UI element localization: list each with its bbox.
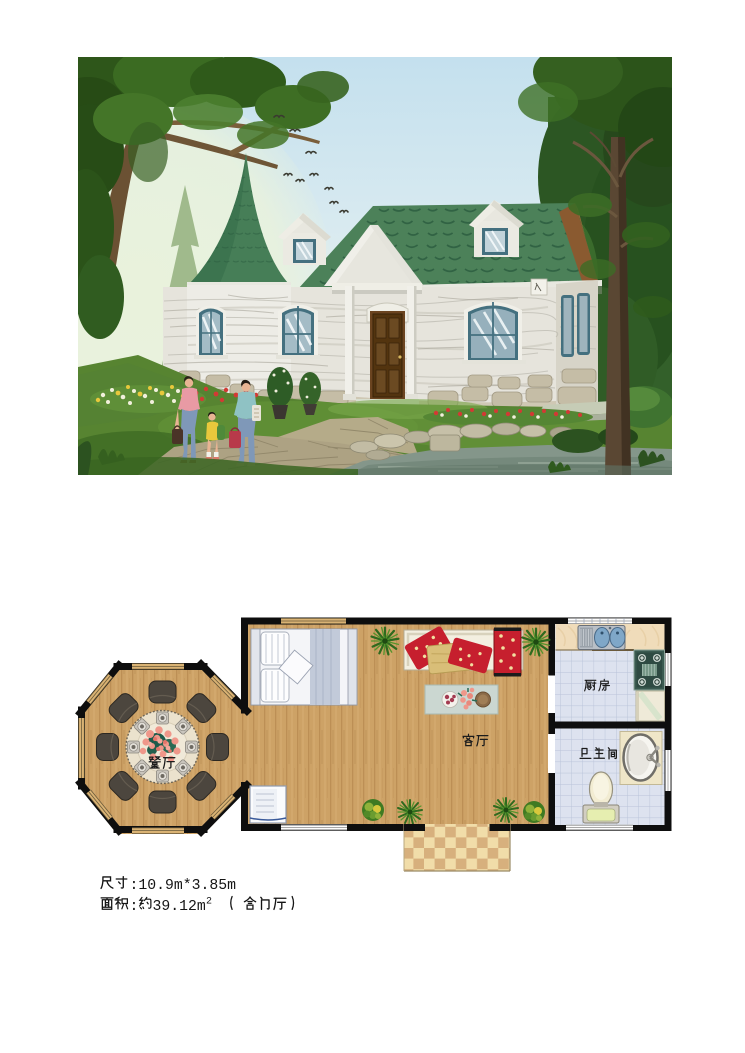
svg-text:2: 2: [206, 897, 212, 908]
svg-text::10.9m*3.85m: :10.9m*3.85m: [130, 878, 237, 894]
svg-text:39.12m: 39.12m: [153, 899, 206, 915]
svg-text::: :: [130, 899, 139, 915]
